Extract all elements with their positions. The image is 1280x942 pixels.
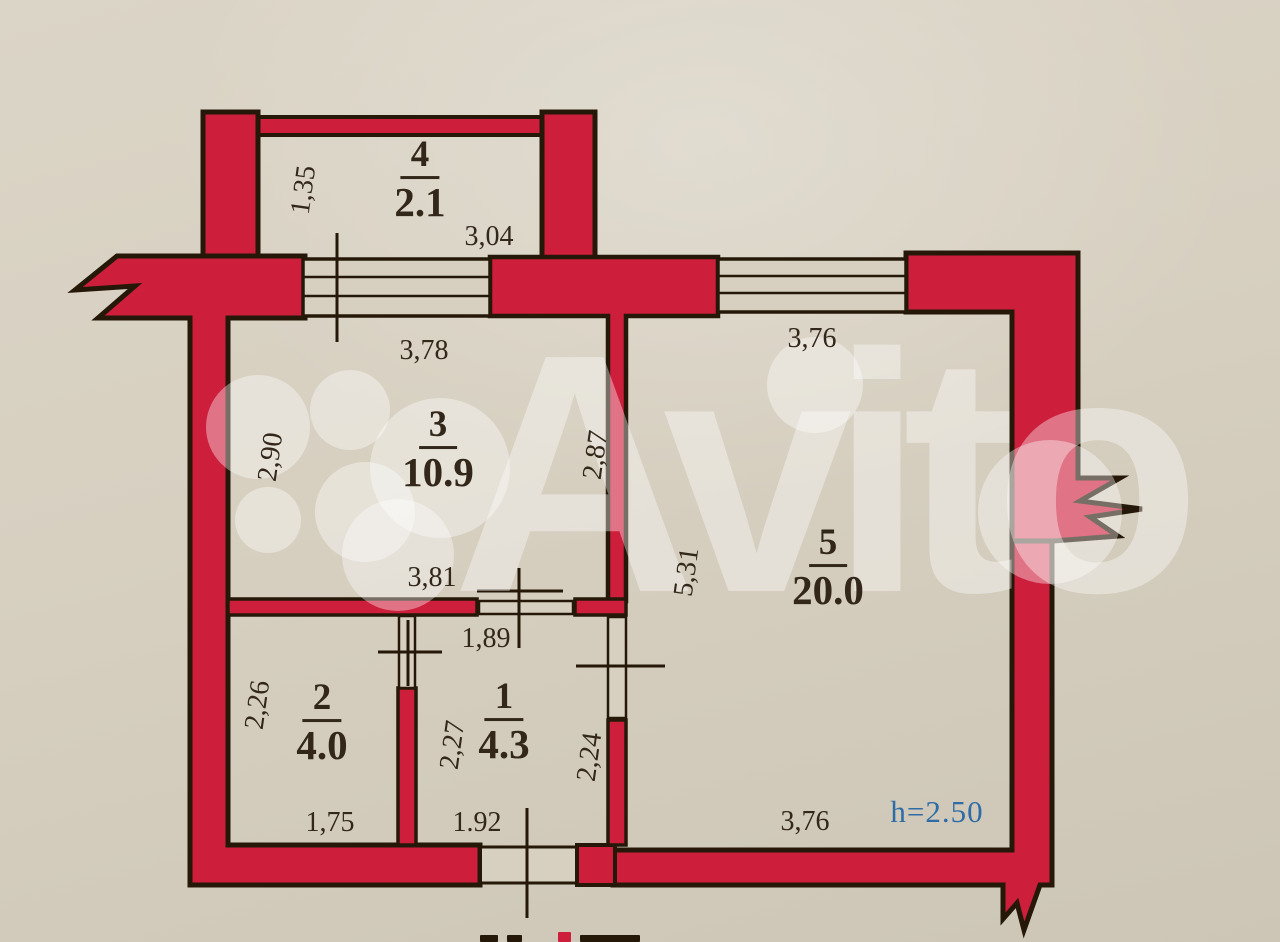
door-frame-room3: [479, 601, 573, 614]
cutoff-text-fragment: [480, 935, 498, 942]
wall-balcony-right-column: [542, 112, 595, 259]
wall-balcony-left-column: [203, 112, 258, 259]
wall-room1-room5: [608, 720, 626, 845]
floor-plan-page: Avito 4 2.1 3 10.9 5 20.0 2 4.0 1 4.3 3,…: [0, 0, 1280, 942]
wall-bottom-entry-right: [577, 845, 615, 885]
wall-right-upper: [906, 253, 1142, 541]
wall-room2-room1: [398, 688, 416, 845]
floor-plan-drawing: [0, 0, 1280, 942]
wall-balcony-top: [250, 117, 548, 135]
wall-right-lower-and-bottom: [613, 541, 1052, 930]
window-room5: [718, 259, 906, 312]
cutoff-text-fragment: [507, 935, 522, 942]
wall-room3-room2: [228, 599, 477, 615]
wall-top-middle-and-room3-room5: [490, 257, 718, 601]
window-room3: [303, 259, 490, 316]
wall-left-outer: [75, 256, 480, 885]
cutoff-text-fragment: [580, 935, 640, 942]
cutoff-text-fragment: [558, 932, 571, 942]
wall-room3-room1: [575, 599, 626, 615]
